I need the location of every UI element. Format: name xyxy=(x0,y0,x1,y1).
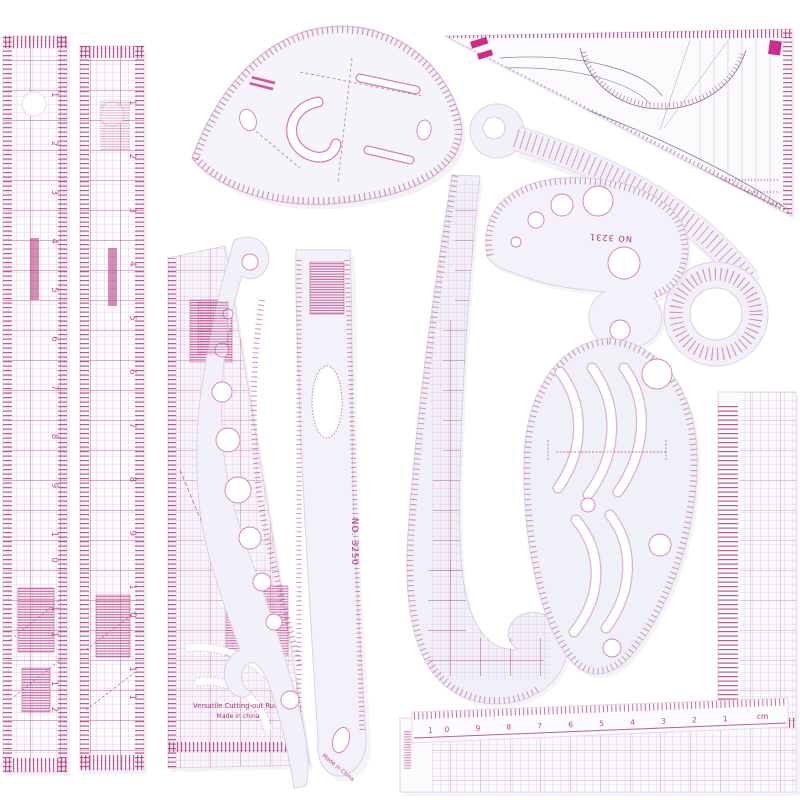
graduated-hole xyxy=(253,573,271,591)
circle-cutout xyxy=(603,639,621,657)
patchwork-ruler-left: 1 2 3 4 5 6 7 8 9 10 11 12 xyxy=(3,36,70,776)
template-body xyxy=(192,26,462,204)
circle-cutout xyxy=(649,534,671,556)
tail-hole xyxy=(610,320,630,340)
ring-hole xyxy=(690,288,742,340)
teardrop-curve-template xyxy=(192,26,466,209)
vertical-tick-column xyxy=(718,404,738,722)
graduated-hole xyxy=(216,428,240,452)
vertical-grid-bold xyxy=(740,392,796,722)
spiral-hole xyxy=(608,247,640,279)
circle-cutout xyxy=(642,359,672,389)
grid-bold xyxy=(3,36,67,772)
brand-mark xyxy=(108,248,117,306)
end-label-block xyxy=(404,730,411,770)
model-number: NO. 3250 xyxy=(349,518,359,566)
hook-hole xyxy=(242,254,258,270)
french-curve-3231: NO 3231 xyxy=(486,178,692,353)
grid-column xyxy=(443,320,503,460)
graduated-hole xyxy=(528,212,544,228)
graduated-hole xyxy=(281,691,299,709)
graduated-hole xyxy=(266,614,282,630)
tick-band-top xyxy=(3,36,67,48)
tick-band-left xyxy=(168,258,176,768)
size-table-patch xyxy=(22,668,50,712)
tick-band-bottom xyxy=(3,758,67,772)
origin-text: Made in china xyxy=(216,713,259,720)
brand-mark xyxy=(30,238,39,300)
graduated-hole xyxy=(212,382,232,402)
ruler-set-scene: 1 2 3 4 5 6 7 8 9 10 11 12 1 2 3 4 5 6 7… xyxy=(0,0,800,800)
ruler-title: Versatile Cutting-out Ruler xyxy=(193,702,283,710)
graduated-hole xyxy=(511,237,521,247)
tick-band-top xyxy=(445,29,793,38)
tick-band-left xyxy=(3,36,12,772)
tick-band-top xyxy=(80,46,144,58)
stamp-mark xyxy=(768,40,782,56)
size-table-patch xyxy=(96,595,130,657)
tick-band-right xyxy=(58,36,67,772)
graduated-hole xyxy=(583,186,613,216)
size-table-patch xyxy=(18,588,54,652)
tick-band-left xyxy=(80,46,89,770)
tick-band-right xyxy=(783,29,792,217)
armhole-template xyxy=(524,338,700,678)
patchwork-ruler-right: 1 2 3 4 5 6 7 8 9 10 11 xyxy=(80,46,147,774)
size-table-patch xyxy=(100,100,130,150)
dense-table-patch xyxy=(198,302,228,354)
unit-label: cm xyxy=(757,712,769,721)
straight-curve-3250: NO. 3250 Made in China xyxy=(296,250,371,783)
graduated-hole xyxy=(239,527,261,549)
graduated-hole xyxy=(551,194,573,216)
tick-band-bottom xyxy=(80,755,144,770)
hanging-hole xyxy=(22,92,46,116)
oval-cutout xyxy=(312,366,342,438)
graduated-hole xyxy=(225,477,251,503)
dense-table-patch xyxy=(310,262,344,314)
product-photo: 1 2 3 4 5 6 7 8 9 10 11 12 1 2 3 4 5 6 7… xyxy=(0,0,800,800)
circle-cutout xyxy=(581,498,595,512)
hook-hole xyxy=(483,117,505,139)
